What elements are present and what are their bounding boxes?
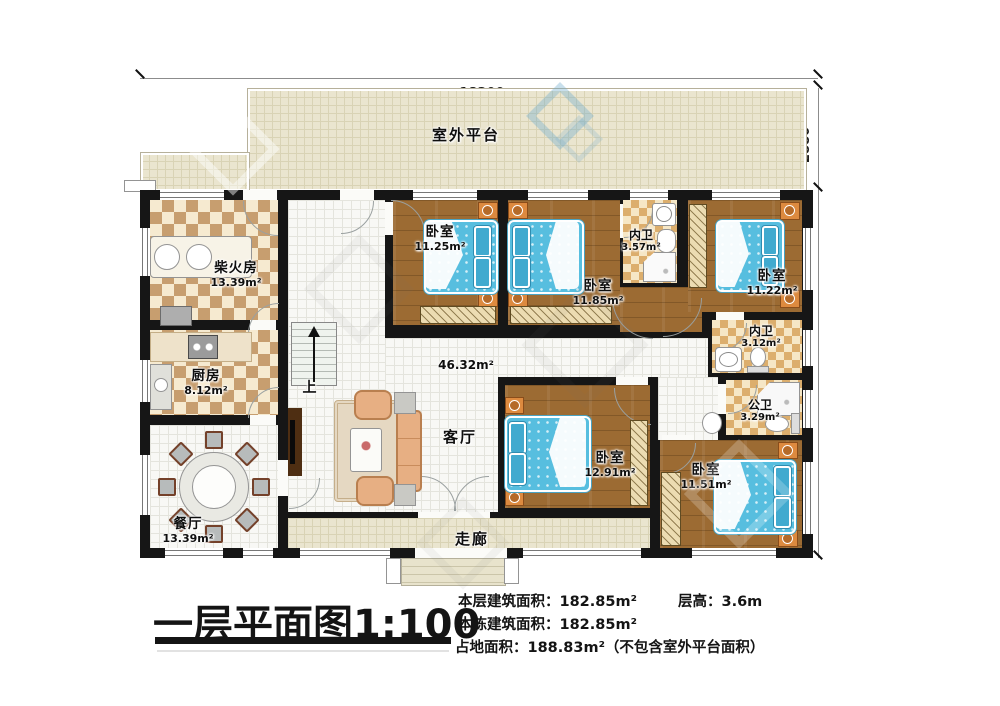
- firewood-room-label: 柴火房 13.39m²: [186, 260, 286, 289]
- bedroom1-label: 卧室 11.25m²: [402, 224, 478, 253]
- stat-storey-height-value: 3.6m: [722, 594, 763, 610]
- pedestal-sink: [702, 412, 722, 434]
- corridor-label: 走廊: [444, 530, 500, 548]
- floor-plan-canvas: 18200 2880 10000 室外平台: [0, 0, 1000, 706]
- dimension-line-top: [140, 78, 818, 79]
- porch-steps: [401, 558, 506, 586]
- bed-pillow: [509, 453, 526, 485]
- window: [630, 190, 668, 200]
- dining-chair: [205, 431, 223, 449]
- window: [165, 548, 223, 558]
- toilet-tank: [747, 366, 769, 373]
- stat-storey-height: 层高：3.6m: [678, 590, 762, 611]
- window: [140, 360, 150, 402]
- bed-pillow: [509, 422, 526, 454]
- window: [803, 462, 813, 534]
- living-room-area-label: 46.32m²: [424, 358, 508, 372]
- bed-pillow: [774, 497, 791, 528]
- nightstand: [478, 202, 498, 219]
- porch-column: [504, 558, 519, 584]
- stat-floor-area: 本层建筑面积：182.85m²: [458, 590, 637, 611]
- tv-screen: [290, 420, 295, 464]
- dining-room-label: 餐厅 13.39m²: [150, 516, 226, 545]
- bed-pillow: [513, 226, 530, 257]
- window: [300, 548, 390, 558]
- bedroom4-label: 卧室 12.91m²: [570, 450, 650, 479]
- title-underline-thin: [157, 650, 449, 652]
- door-opening: [278, 460, 288, 496]
- firewood-stove: [160, 306, 192, 326]
- window: [523, 548, 641, 558]
- cooktop: [188, 335, 218, 359]
- stat-land-area-label: 占地面积：: [455, 640, 528, 656]
- ensuite-bath-top-label: 内卫 3.57m²: [612, 228, 670, 254]
- firewood-basin: [154, 244, 180, 270]
- nightstand: [508, 202, 528, 219]
- stat-land-area-value: 188.83m²（不包含室外平台面积）: [528, 640, 765, 656]
- window: [692, 548, 776, 558]
- door-opening: [616, 377, 648, 385]
- bed-pillow: [513, 257, 530, 288]
- bed-pillow: [774, 466, 791, 497]
- outdoor-platform-floor: [247, 88, 807, 192]
- outdoor-platform-label: 室外平台: [414, 126, 518, 144]
- bed-pillow: [762, 226, 778, 256]
- bedroom5-label: 卧室 11.51m²: [664, 462, 748, 491]
- bedroom2-label: 卧室 11.85m²: [556, 278, 640, 307]
- coffee-table: [350, 428, 382, 472]
- stairs-arrow-shaft: [313, 336, 315, 382]
- door-opening: [418, 512, 490, 518]
- wardrobe: [689, 204, 707, 288]
- nightstand: [505, 397, 524, 414]
- bathroom-sink-bowl: [656, 206, 672, 222]
- door-opening: [243, 190, 277, 200]
- toilet-tank: [791, 413, 800, 434]
- porch-door-opening: [415, 548, 507, 558]
- window: [803, 330, 813, 366]
- stat-total-area-label: 本栋建筑面积：: [458, 617, 560, 633]
- title-underline: [155, 637, 451, 644]
- outdoor-platform-floor-left: [140, 152, 250, 192]
- dining-table-top: [192, 465, 236, 509]
- stat-floor-area-value: 182.85m²: [560, 594, 637, 610]
- door-opening: [662, 435, 694, 440]
- armchair: [356, 476, 394, 506]
- stairs-arrow-head: [308, 326, 320, 337]
- dining-chair: [158, 478, 176, 496]
- ensuite-bath-mid-label: 内卫 3.12m²: [730, 324, 792, 350]
- living-room-label: 客厅: [426, 428, 494, 446]
- stat-storey-height-label: 层高：: [678, 594, 722, 610]
- stat-floor-area-label: 本层建筑面积：: [458, 594, 560, 610]
- porch-column: [386, 558, 401, 584]
- side-table: [394, 484, 416, 506]
- hallway-floor-h: [498, 338, 708, 377]
- window: [140, 228, 150, 276]
- window: [243, 548, 273, 558]
- bed-pillow: [474, 257, 491, 288]
- window: [413, 190, 477, 200]
- window: [712, 190, 780, 200]
- door-opening: [716, 312, 744, 320]
- sofa-three-seat: [396, 410, 422, 492]
- wardrobe: [510, 306, 612, 324]
- bathroom-sink-bowl: [719, 352, 738, 367]
- wardrobe: [420, 306, 496, 324]
- stat-total-area: 本栋建筑面积：182.85m²: [458, 613, 637, 634]
- window: [528, 190, 588, 200]
- bedroom3-label: 卧室 11.22m²: [734, 268, 810, 297]
- window: [160, 190, 224, 200]
- dining-chair: [252, 478, 270, 496]
- door-opening: [718, 384, 726, 414]
- window: [140, 455, 150, 515]
- stat-total-area-value: 182.85m²: [560, 617, 637, 633]
- dimension-line-right: [818, 88, 819, 558]
- window: [803, 390, 813, 428]
- nightstand: [778, 442, 798, 459]
- armchair: [354, 390, 392, 420]
- public-bath-label: 公卫 3.29m²: [728, 398, 792, 424]
- stairs-up-label: 上: [300, 380, 320, 397]
- side-table: [394, 392, 416, 414]
- nightstand: [780, 202, 800, 220]
- kitchen-label: 厨房 8.12m²: [164, 368, 248, 397]
- stat-land-area: 占地面积：188.83m²（不包含室外平台面积）: [455, 636, 764, 657]
- main-entry-opening: [340, 190, 374, 200]
